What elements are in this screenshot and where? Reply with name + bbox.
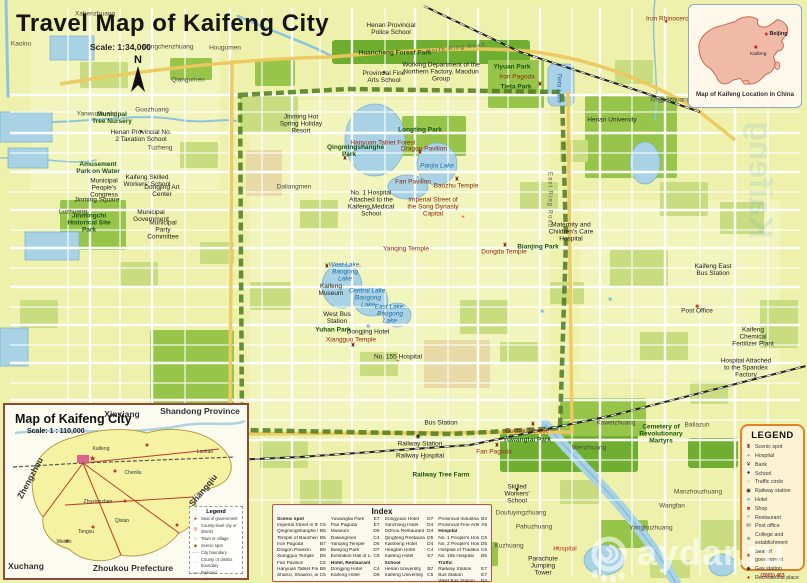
prefecture-legend-item: ══ Railroad (192, 570, 240, 577)
legend-panel: LEGEND ♜ Scenic spot + Hospital ¥ Bank ●… (740, 424, 805, 571)
prefecture-inset-legend: Legend ★ Seat of government ◎ County-lev… (189, 506, 243, 574)
legend-item-icon: ● (745, 513, 752, 522)
legend-item: ★ Seat of government (745, 548, 800, 565)
beijing-label: Beijing (770, 31, 788, 37)
index-column-2: Yuwangtai ParkE7Pan PagodaE7MuseumD5Dali… (331, 517, 380, 583)
legend-item-icon: ¥ (745, 461, 752, 470)
map-scale: Scale: 1:34,000 (90, 42, 329, 52)
prefecture-legend-icon: ══ (192, 570, 199, 577)
legend-item-icon: ■ (745, 496, 752, 505)
legend-item-icon: ■ (745, 505, 752, 514)
legend-item: ¥ Bank (745, 461, 800, 470)
prefecture-legend-icon: ··· (192, 560, 199, 567)
legend-item: ○ Traffic circle (745, 478, 800, 487)
legend-item: ♜ Scenic spot (745, 443, 800, 452)
north-arrow: N (128, 54, 148, 94)
legend-item: ◉ Railway station (745, 487, 800, 496)
title-block: Travel Map of Kaifeng City Scale: 1:34,0… (16, 10, 329, 52)
prefecture-legend-item: ··· County or district boundary (192, 557, 240, 570)
prefecture-legend-icon: ◎ (192, 526, 199, 533)
index-row: Kaifeng HotelD6 (331, 573, 380, 579)
legend-item-icon: ♜ (745, 443, 752, 452)
town-label: Chenliu (125, 470, 142, 476)
legend-item: ✉ Post office (745, 522, 800, 531)
compass-needle-icon (131, 66, 145, 94)
prefecture-legend-item: ◎ County-level city or district (192, 523, 240, 536)
region-label: Xinxiang (104, 409, 139, 419)
prefecture-legend-item: ★ Seat of government (192, 516, 240, 523)
region-label: Zhoukou Prefecture (93, 563, 173, 573)
legend-item-icon: ○ (745, 478, 752, 487)
page-title: Travel Map of Kaifeng City (16, 10, 329, 38)
legend-item-icon: ★ (745, 552, 752, 561)
town-label: Zhuxianzhen (84, 499, 113, 505)
map-canvas: Kaifeng Huancheng Forest ParkYiyuan Park… (0, 0, 807, 583)
legend-item: ■ Hotel (745, 496, 800, 505)
north-label: N (128, 54, 148, 66)
index-panel: Index Scenic spotImperial Street in the … (272, 504, 492, 582)
region-label: Xuchang (8, 561, 44, 571)
legend-item: ■ College and establishment (745, 531, 800, 548)
legend-item-icon: + (745, 452, 752, 461)
legend-items: ♜ Scenic spot + Hospital ¥ Bank ● School… (745, 443, 800, 582)
index-row: West Bus StationD4 (438, 579, 487, 583)
prefecture-legend-title: Legend (192, 509, 240, 515)
legend-item: ■ Shop (745, 505, 800, 514)
town-label: Tongxu (78, 529, 94, 535)
legend-item: ● School (745, 469, 800, 478)
china-inset-caption: Map of Kaifeng Location in China (691, 91, 799, 98)
legend-item-icon: ✉ (745, 522, 752, 531)
china-map-art: ★ Beijing Kaifeng (691, 8, 799, 90)
prefecture-legend-item: ○ Town or village (192, 536, 240, 543)
legend-item-icon: ● (745, 469, 752, 478)
region-label: Shandong Province (160, 406, 240, 416)
prefecture-legend-icon: ★ (192, 516, 199, 523)
index-row: Shanxi, Shaanxi, and Gansu GuildC5 (277, 573, 326, 579)
legend-item: ● Restaurant (745, 513, 800, 522)
legend-item-icon: ■ (745, 535, 752, 544)
kaifeng-label: Kaifeng (750, 51, 767, 57)
prefecture-inset-scale: Scale: 1 : 110,000 (27, 428, 85, 435)
prefecture-legend-item: ◆ Scenic spot (192, 543, 240, 550)
index-column-1: Scenic spotImperial Street in the Song D… (277, 517, 326, 583)
index-column-4: Provincial Industrial and Commercial Sch… (438, 517, 487, 583)
seat-star-icon: ★ (89, 454, 96, 463)
index-title: Index (277, 507, 487, 516)
town-label: Kaifeng (93, 446, 110, 452)
prefecture-legend-item: –·– City boundary (192, 550, 240, 557)
town-label: Weishi (57, 539, 72, 545)
prefecture-legend-items: ★ Seat of government ◎ County-level city… (192, 516, 240, 580)
prefecture-legend-icon: ◆ (192, 543, 199, 550)
beijing-star-icon: ★ (764, 31, 769, 38)
prefecture-legend-item: ── Highway (192, 577, 240, 580)
index-row: Kaifeng UniversityC5 (385, 573, 434, 579)
prefecture-legend-icon: ○ (192, 536, 199, 543)
index-column-3: Dongyuan HotelD7Yanzhong HotelD4Dizhou R… (385, 517, 434, 583)
publication-note: (2001) 463 (740, 573, 805, 579)
town-label: Qixian (115, 518, 129, 524)
town-label: Lankao (197, 449, 213, 455)
legend-item-icon: ◉ (745, 487, 752, 496)
prefecture-inset: ★ Map of Kaifeng City Scale: 1 : 110,000… (3, 403, 249, 580)
kaifeng-dot-icon (754, 45, 757, 48)
prefecture-legend-icon: ── (192, 577, 199, 580)
legend-title: LEGEND (745, 430, 800, 441)
china-location-inset: ★ Beijing Kaifeng Map of Kaifeng Locatio… (688, 4, 802, 108)
legend-item: + Hospital (745, 452, 800, 461)
prefecture-legend-icon: –·– (192, 550, 199, 557)
